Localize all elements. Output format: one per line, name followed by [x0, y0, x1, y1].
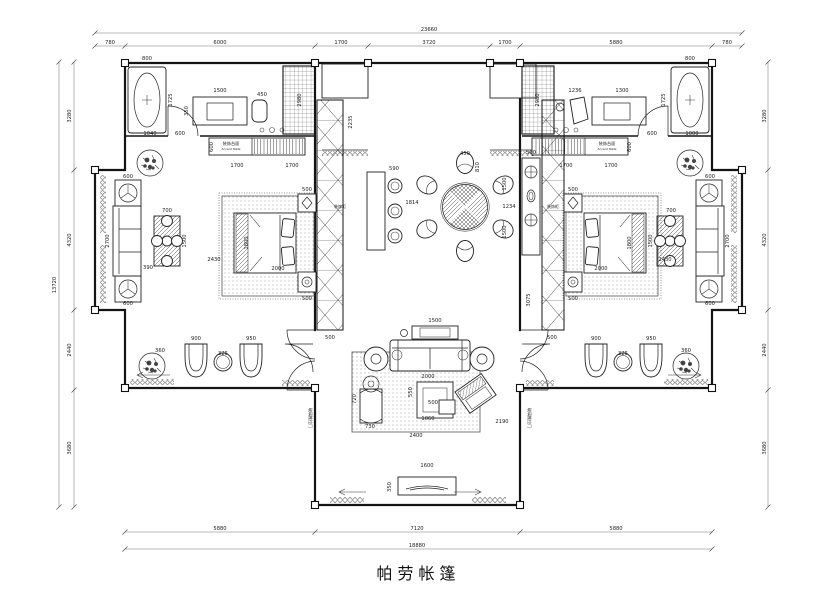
dim-label: 5880	[213, 526, 226, 532]
dim-label: 730	[365, 424, 375, 430]
dim-label: 23660	[421, 27, 438, 33]
dim-label: 390	[143, 265, 153, 271]
dim-label: 2000	[421, 374, 434, 380]
dim-label: 950	[646, 336, 656, 342]
dining-set	[414, 153, 517, 262]
accent-table-label-cn: 装饰台面	[599, 140, 616, 147]
dim-label: 1700	[559, 163, 572, 169]
dim-label: 1236	[568, 88, 581, 94]
dim-label: 1000	[685, 131, 698, 137]
dim-label: 600	[123, 174, 133, 180]
dim-label: 5880	[609, 40, 622, 46]
right-wardrobe-lattice	[542, 100, 564, 330]
left-wardrobe-lattice	[317, 100, 343, 330]
accent-table-label-en: Accent Table	[598, 147, 617, 151]
dim-label: 1800	[627, 236, 633, 249]
dim-label: 800	[142, 56, 152, 62]
dim-label: 1700	[285, 163, 298, 169]
tv-console	[398, 477, 456, 495]
dim-label: 3680	[762, 441, 768, 454]
entry-closets	[322, 64, 536, 156]
right-console-strip	[522, 158, 540, 255]
dim-label: 780	[722, 40, 732, 46]
dim-label: 3280	[762, 109, 768, 122]
door-note: 玻璃推拉门	[308, 408, 314, 428]
cabinet-label: 装饰柜	[547, 203, 559, 209]
dim-label: 3075	[526, 293, 532, 306]
accent-table-label-en: Accent Table	[222, 147, 241, 151]
dim-label: 2400	[409, 433, 422, 439]
dim-label: 780	[105, 40, 115, 46]
dim-label: 1700	[230, 163, 243, 169]
dim-label: 2190	[495, 419, 508, 425]
dim-label: 1500	[182, 234, 188, 247]
dim-label: 600	[123, 301, 133, 307]
dim-label: 325	[618, 351, 628, 357]
dim-label: 2440	[67, 343, 73, 356]
dim-label: 590	[389, 166, 399, 172]
right-vanity	[554, 97, 646, 133]
dim-label: 360	[681, 348, 691, 354]
dim-label: 1600	[420, 463, 433, 469]
dim-label: 2700	[725, 234, 731, 247]
dim-label: 1700	[498, 40, 511, 46]
dim-label: 1814	[405, 200, 419, 206]
dim-label: 1500	[648, 234, 654, 247]
dim-label: 600	[209, 142, 215, 152]
dim-label: 1500	[213, 88, 226, 94]
floorplan-svg: 2366078060001700372017005880780588071205…	[0, 0, 837, 592]
dim-label: 700	[666, 208, 676, 214]
dim-label: 1700	[604, 163, 617, 169]
dim-label: 550	[408, 387, 414, 397]
dim-label: 2430	[207, 257, 220, 263]
dim-label: 18880	[409, 543, 426, 549]
left-bed-group	[219, 193, 317, 299]
left-bathtub	[128, 67, 166, 133]
plant-icon	[677, 150, 703, 176]
dim-label: 360	[155, 348, 165, 354]
dim-label: 450	[460, 151, 470, 157]
dim-label: 325	[218, 351, 228, 357]
dim-label: 900	[191, 336, 201, 342]
dim-label: 1500	[502, 225, 508, 238]
accent-table-label-cn: 装饰台面	[223, 140, 240, 147]
dim-label: 4320	[762, 233, 768, 246]
dim-label: 500	[302, 187, 312, 193]
dim-label: 3680	[67, 441, 73, 454]
dim-label: 6000	[213, 40, 226, 46]
dim-label: 500	[568, 296, 578, 302]
dim-label: 600	[705, 301, 715, 307]
cabinet-label: 装饰柜	[334, 203, 346, 209]
dim-label: 7120	[410, 526, 423, 532]
dim-label: 4320	[67, 233, 73, 246]
dim-label: 1060	[421, 416, 434, 422]
dim-label: 3280	[67, 109, 73, 122]
left-game-table	[152, 216, 183, 267]
dim-label: 500	[568, 187, 578, 193]
dim-label: 1300	[615, 88, 628, 94]
plant-icon	[137, 150, 163, 176]
dim-label: 600	[705, 174, 715, 180]
dim-label: 950	[246, 336, 256, 342]
dim-label: 2980	[297, 93, 303, 106]
dim-label: 1725	[661, 93, 667, 106]
dim-label: 700	[162, 208, 172, 214]
dim-label: 350	[387, 482, 393, 492]
dim-label: 3720	[422, 40, 435, 46]
dim-label: 500	[526, 150, 536, 156]
door-note: 玻璃推拉门	[527, 408, 533, 428]
dim-label: 800	[685, 56, 695, 62]
dim-label: 500	[302, 296, 312, 302]
dim-label: 900	[591, 336, 601, 342]
dim-label: 600	[647, 131, 657, 137]
dim-label: 2700	[105, 234, 111, 247]
dim-label: 450	[257, 92, 267, 98]
dim-label: 500	[428, 400, 438, 406]
dim-label: 2000	[271, 266, 284, 272]
bar-counter	[367, 172, 402, 250]
dim-label: 1725	[168, 93, 174, 106]
dim-label: 2000	[594, 266, 607, 272]
dim-label: 600	[627, 142, 633, 152]
dim-label: 1800	[244, 236, 250, 249]
dim-label: 5880	[609, 526, 622, 532]
dim-label: 720	[352, 394, 358, 404]
plan-title: 帕劳帐篷	[0, 560, 837, 584]
floorplan-sheet: 2366078060001700372017005880780588071205…	[0, 0, 837, 592]
dim-label: 2980	[535, 93, 541, 106]
dim-label: 500	[325, 335, 335, 341]
dim-label: 810	[475, 162, 481, 172]
dim-label: 2430	[658, 257, 671, 263]
dim-label: 2440	[762, 343, 768, 356]
right-bed-group	[563, 193, 661, 299]
dim-label: 1500	[502, 177, 508, 190]
left-vanity	[193, 97, 284, 133]
dim-label: 1234	[502, 204, 516, 210]
dim-label: 600	[175, 131, 185, 137]
dim-label: 500	[547, 335, 557, 341]
dim-label: 1700	[334, 40, 347, 46]
dim-label: 350	[184, 106, 190, 116]
right-bathtub	[671, 67, 709, 133]
dim-label: 1500	[428, 318, 441, 324]
dim-label: 13720	[52, 277, 58, 294]
dim-label: 2235	[348, 115, 354, 128]
dim-label: 1040	[143, 131, 156, 137]
